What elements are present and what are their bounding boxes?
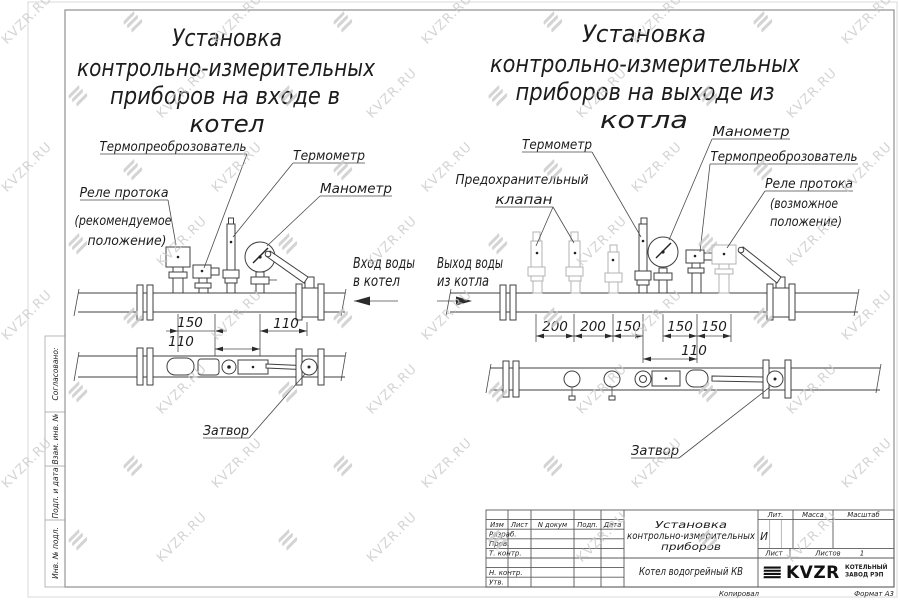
tb-doc-title-2: контрольно-измерительных	[627, 531, 755, 542]
right-dimensions: 200 200 150 150 150 110	[536, 314, 731, 363]
title-block: Изм Лист N докум Подп. Дата Разраб. Пров…	[486, 510, 894, 587]
outlet-flow-arrow	[437, 297, 472, 306]
right-top-view	[486, 360, 881, 400]
side-label-replacement-inv: Взам. инв. №	[51, 413, 60, 464]
label-inlet-line-2: в котел	[353, 272, 400, 290]
label-flow-relay-right-2: (возможное	[770, 197, 838, 212]
right-title-line-4: котла	[600, 106, 688, 134]
side-column: Согласовано: Взам. инв. № Подп. и дата И…	[51, 348, 60, 579]
label-manometer-right: Манометр	[713, 125, 790, 140]
dim-label-200-b: 200	[580, 319, 606, 335]
tb-row-utv: Утв.	[489, 579, 504, 587]
label-safety-valve-2: клапан	[496, 193, 554, 208]
tb-copied-label: Копировал	[719, 590, 760, 598]
label-inlet-line-1: Вход воды	[353, 254, 415, 272]
tb-lit-value: И	[760, 531, 768, 543]
tb-row-nkontr: Н. контр.	[489, 569, 523, 577]
label-safety-valve-1: Предохранительный	[456, 173, 589, 188]
pressure-gauge-device	[648, 237, 678, 293]
left-title-line-4: котел	[190, 110, 265, 138]
label-thermometer-right: Термометр	[522, 138, 592, 153]
label-outlet-line-2: из котла	[437, 272, 489, 290]
left-labels: Термопреоброзователь Термометр Манометр …	[75, 140, 416, 439]
tb-mass-label: Масса	[802, 511, 824, 519]
drawing-canvas: Согласовано: Взам. инв. № Подп. и дата И…	[0, 0, 900, 600]
tb-format-label: Формат А3	[854, 590, 894, 598]
dim-label-110-left-upper: 110	[273, 316, 299, 332]
left-title-line-3: приборов на входе в	[110, 82, 340, 110]
right-title: Установка контрольно-измерительных прибо…	[490, 20, 801, 134]
label-thermometer-left: Термометр	[293, 149, 365, 164]
right-title-line-1: Установка	[582, 20, 706, 48]
label-flow-relay-right-1: Реле протока	[765, 177, 853, 192]
tb-header-list: Лист	[510, 521, 529, 529]
pipe-flange	[137, 285, 153, 320]
left-top-view	[74, 348, 346, 385]
tb-row-prov: Пров.	[489, 540, 509, 548]
label-flow-relay-left-1: Реле протока	[80, 186, 169, 201]
side-label-sign-date: Подп. и дата	[51, 467, 60, 518]
flow-relay-device	[166, 247, 190, 293]
thermo-transducer-device	[686, 250, 712, 293]
left-title-line-1: Установка	[172, 24, 282, 52]
tb-doc-title-3: приборов	[661, 542, 722, 553]
left-dimensions: 150 110 110	[166, 314, 307, 356]
tb-company-line-2: ЗАВОД РЭП	[845, 573, 884, 579]
tb-lit-label: Лит.	[767, 511, 784, 519]
tb-company-line-1: КОТЕЛЬНЫЙ	[845, 563, 888, 571]
tb-header-data: Дата	[603, 521, 622, 529]
label-flow-relay-left-3: положение)	[88, 234, 167, 249]
inlet-flow-arrow	[354, 297, 398, 306]
tb-sheets-value: 1	[860, 550, 864, 558]
dim-label-150-left: 150	[177, 315, 203, 331]
thermometer-device	[223, 218, 239, 293]
label-valve-right: Затвор	[631, 444, 679, 459]
right-title-line-3: приборов на выходе из	[516, 78, 775, 106]
label-transducer-right: Термопреоброзователь	[711, 150, 858, 165]
tb-row-tkontr: Т. контр.	[489, 550, 522, 558]
right-title-line-2: контрольно-измерительных	[490, 50, 801, 78]
label-manometer-left: Манометр	[320, 182, 392, 197]
label-outlet-line-1: Выход воды	[437, 254, 503, 272]
left-title-line-2: контрольно-измерительных	[77, 54, 376, 82]
dim-label-200-a: 200	[542, 319, 568, 335]
tb-sheets-label: Листов	[814, 550, 840, 558]
pressure-gauge-device	[245, 242, 277, 293]
kvzr-logo-icon	[764, 567, 781, 579]
side-label-approved: Согласовано:	[51, 348, 60, 401]
flow-relay-ghost-device	[712, 245, 736, 293]
tb-doc-title-1: Установка	[655, 520, 727, 531]
tb-row-razrab: Разраб.	[489, 531, 517, 539]
tb-product-name: Котел водогрейный КВ	[639, 566, 743, 578]
safety-valve-1-device	[528, 232, 545, 293]
dim-label-150-c: 150	[701, 319, 727, 335]
safety-valve-2-device	[566, 232, 583, 293]
pipe-flange	[500, 285, 516, 320]
tb-header-ndocum: N докум	[538, 521, 567, 529]
label-flow-relay-right-3: положение)	[770, 215, 842, 230]
tb-header-izm: Изм	[490, 521, 504, 529]
label-transducer-left: Термопреоброзователь	[100, 140, 247, 155]
thermo-transducer-device	[193, 265, 219, 293]
label-valve-left: Затвор	[203, 424, 249, 439]
butterfly-valve-device	[265, 251, 324, 320]
side-label-inv-number: Инв. № подл.	[51, 527, 60, 579]
butterfly-valve-device	[738, 247, 795, 320]
dim-label-150-b: 150	[667, 319, 693, 335]
tb-logo-text: KVZR	[786, 563, 840, 583]
tb-sheet-label: Лист	[764, 550, 783, 558]
dim-label-110-left-lower: 110	[168, 334, 194, 350]
tb-header-podp: Подп.	[577, 521, 598, 529]
dim-label-110-right: 110	[681, 343, 707, 359]
dim-label-150-a: 150	[615, 319, 641, 335]
tb-scale-label: Масштаб	[847, 511, 879, 519]
thermowell-device	[605, 245, 622, 293]
left-title: Установка контрольно-измерительных прибо…	[77, 24, 376, 138]
label-flow-relay-left-2: (рекомендуемое	[75, 214, 172, 229]
